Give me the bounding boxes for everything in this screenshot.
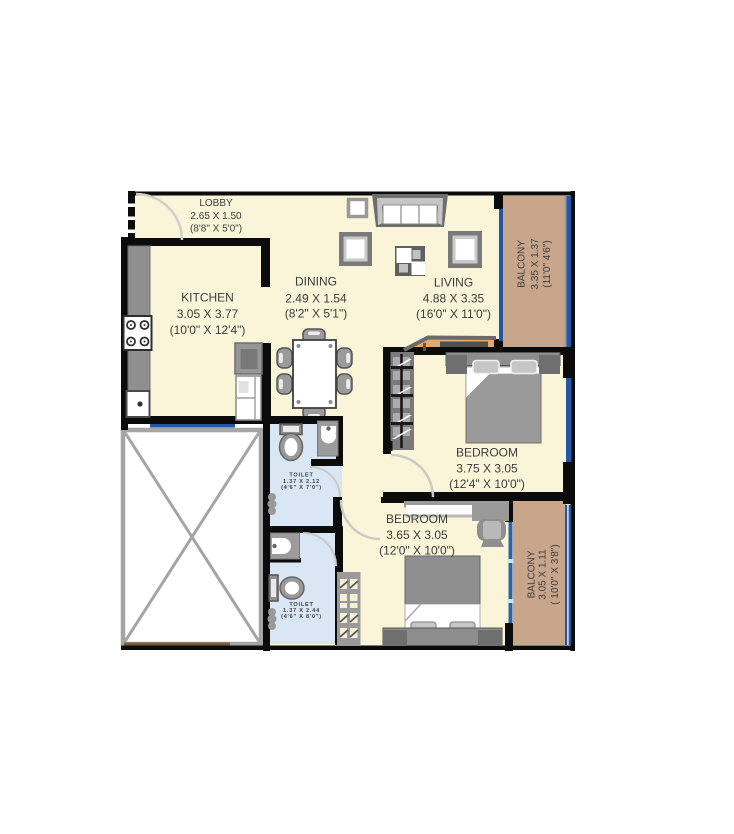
- svg-text:3.05 X 3.77: 3.05 X 3.77: [177, 307, 239, 321]
- svg-text:(11'0" 4'6"): (11'0" 4'6"): [542, 240, 553, 287]
- svg-text:TOILET: TOILET: [289, 473, 313, 479]
- svg-text:( 10'0" X 3'8"): ( 10'0" X 3'8"): [550, 544, 561, 604]
- svg-text:4.88 X 3.35: 4.88 X 3.35: [423, 292, 485, 306]
- svg-text:(4'6" X 7'0"): (4'6" X 7'0"): [281, 485, 322, 491]
- svg-text:LIVING: LIVING: [434, 275, 473, 289]
- svg-text:BALCONY: BALCONY: [517, 240, 528, 288]
- svg-text:(10'0" X 12'4"): (10'0" X 12'4"): [170, 323, 246, 337]
- svg-text:BALCONY: BALCONY: [526, 550, 537, 598]
- svg-text:(8'2" X 5'1"): (8'2" X 5'1"): [285, 307, 347, 321]
- svg-text:(8'8" X 5'0"): (8'8" X 5'0"): [190, 224, 242, 235]
- svg-text:3.35 X 1.37: 3.35 X 1.37: [530, 238, 541, 290]
- svg-text:(12'4" X 10'0"): (12'4" X 10'0"): [449, 477, 525, 491]
- svg-text:KITCHEN: KITCHEN: [181, 291, 234, 305]
- svg-text:BEDROOM: BEDROOM: [386, 512, 448, 526]
- svg-text:3.05 X 1.11: 3.05 X 1.11: [538, 549, 549, 600]
- svg-text:LOBBY: LOBBY: [199, 198, 233, 209]
- svg-text:BEDROOM: BEDROOM: [456, 446, 518, 460]
- svg-text:3.65 X 3.05: 3.65 X 3.05: [386, 528, 448, 542]
- svg-text:(16'0" X 11'0"): (16'0" X 11'0"): [416, 307, 491, 321]
- svg-text:2.65 X 1.50: 2.65 X 1.50: [190, 211, 242, 222]
- svg-text:DINING: DINING: [295, 275, 337, 289]
- svg-text:3.75 X 3.05: 3.75 X 3.05: [456, 461, 518, 475]
- svg-text:2.49 X 1.54: 2.49 X 1.54: [285, 291, 347, 305]
- svg-text:(4'6" X 8'0"): (4'6" X 8'0"): [281, 614, 322, 620]
- svg-text:(12'0" X 10'0"): (12'0" X 10'0"): [379, 544, 455, 558]
